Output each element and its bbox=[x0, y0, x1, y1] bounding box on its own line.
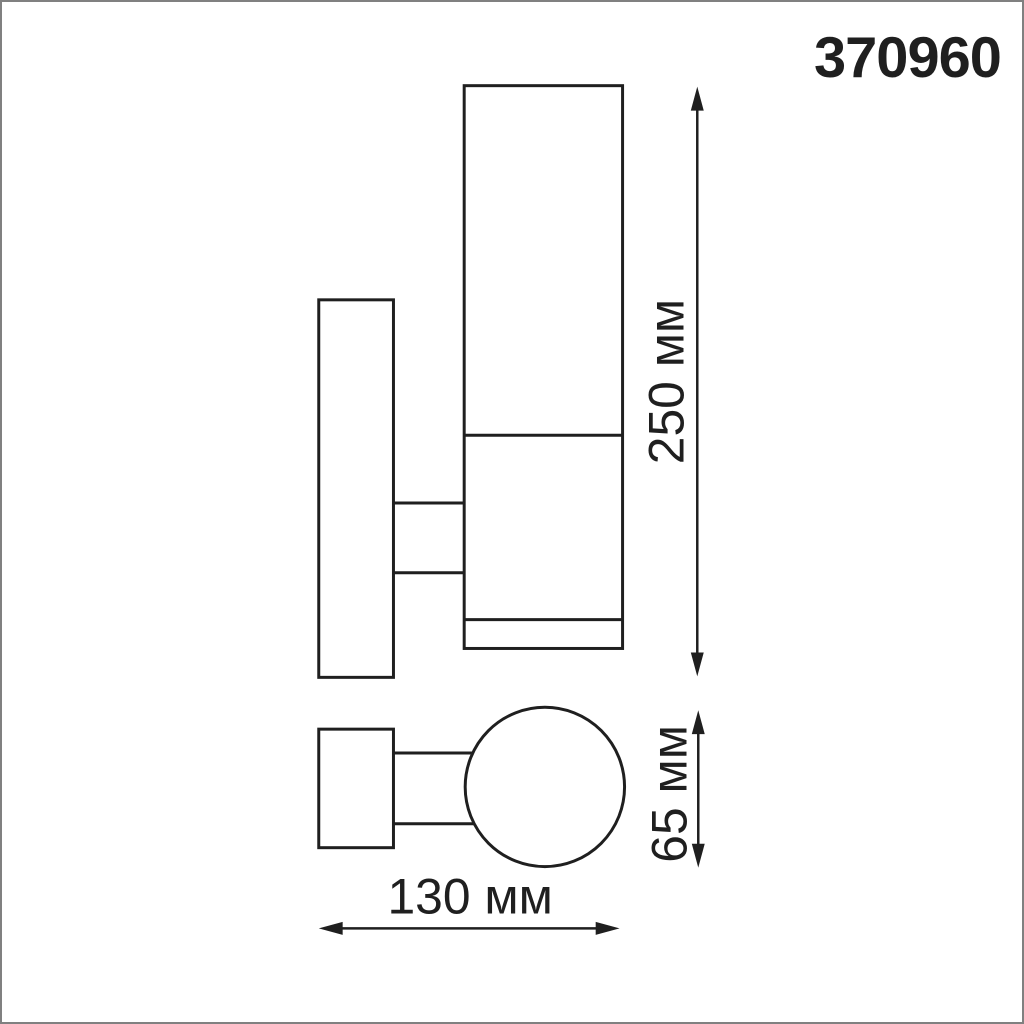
lamp-body-bottom-view bbox=[465, 707, 624, 866]
side-view bbox=[319, 86, 623, 678]
wall-plate-side-view bbox=[319, 300, 394, 678]
diameter-dimension: 65 мм bbox=[641, 710, 704, 867]
width-dimension: 130 мм bbox=[319, 868, 620, 934]
height-dimension-arrow-down-icon bbox=[691, 652, 704, 676]
wall-plate-bottom-view bbox=[319, 729, 394, 848]
width-dimension-label: 130 мм bbox=[387, 868, 552, 924]
bottom-view bbox=[319, 707, 625, 866]
width-dimension-arrow-left-icon bbox=[319, 922, 343, 935]
lamp-body-side-view bbox=[464, 86, 622, 649]
technical-drawing: 250 мм 65 мм 130 мм 370960 bbox=[2, 2, 1022, 1022]
product-code: 370960 bbox=[814, 26, 1001, 90]
height-dimension: 250 мм bbox=[638, 87, 703, 677]
diagram-canvas: 250 мм 65 мм 130 мм 370960 bbox=[0, 0, 1024, 1024]
diameter-dimension-label: 65 мм bbox=[641, 725, 697, 863]
height-dimension-label: 250 мм bbox=[638, 299, 694, 464]
width-dimension-arrow-right-icon bbox=[596, 922, 620, 935]
height-dimension-arrow-up-icon bbox=[691, 87, 704, 111]
